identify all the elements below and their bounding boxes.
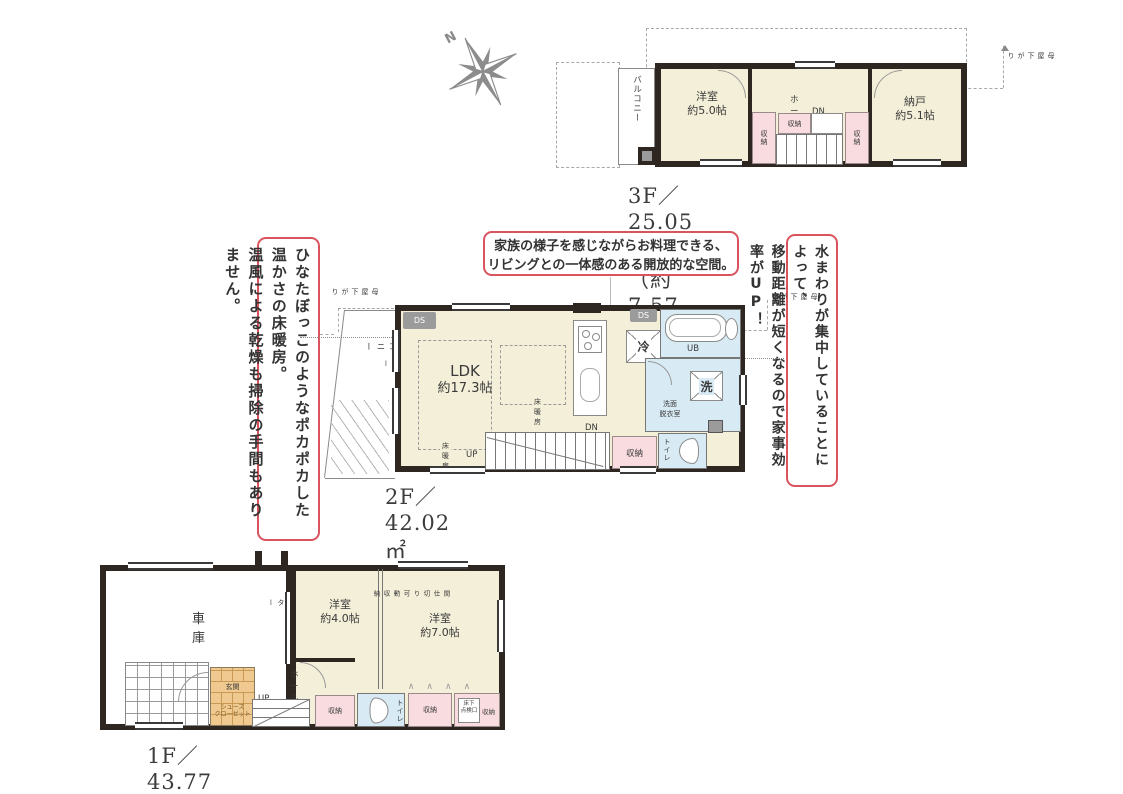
callout-kitchen-line1: 家族の様子を感じながらお料理できる、: [494, 235, 728, 254]
f2-burner-3: [584, 342, 592, 350]
f2-moya-west-dash-h: [338, 308, 394, 309]
f1-genkan: 玄関 シューズ クローゼット: [210, 667, 255, 726]
f1-window-north: [398, 561, 468, 569]
f1-underfloor-line2: 点検口: [459, 708, 479, 715]
f2-ldk-size: 約17.3帖: [420, 381, 510, 397]
f2-ub-room: UB: [660, 309, 741, 358]
f2-section-line-west: [300, 337, 396, 338]
f2-balcony-bottom-edge: [325, 478, 395, 479]
f2-shaft-box: [708, 420, 723, 433]
f3-moya-dash-line: [963, 88, 1003, 89]
f1-room-large-label: 洋室 約7.0帖: [400, 612, 480, 640]
f2-ds-box-east: DS: [630, 309, 657, 322]
f2-burner-1: [582, 330, 590, 338]
f2-toilet-room: トイレ: [658, 433, 707, 469]
f3-closet-hall-label: 収納: [788, 119, 802, 129]
callout-kitchen-leader: [610, 277, 611, 305]
f2-ds-box-west: DS: [403, 312, 436, 329]
f1-partition-label: 間仕切り可動収納: [371, 590, 451, 597]
f1-room-small-size: 約4.0帖: [300, 612, 380, 626]
f1-wall-stub-1: [255, 551, 262, 569]
callout-floorheat-leader: [320, 334, 334, 335]
f3-window-south-1: [700, 159, 742, 167]
f2-closet-label: 収納: [626, 447, 643, 459]
f1-toilet-icon: [370, 698, 389, 724]
f1-wall-stub-2: [281, 551, 288, 569]
f1-partition-line-1: [378, 569, 379, 689]
f3-stairs: [776, 134, 843, 165]
f3-room-east-size: 約5.1帖: [880, 109, 950, 123]
f2-range-hood: [573, 303, 601, 313]
f2-bath-basin: [725, 318, 738, 340]
f2-moya-east-dash-v: [767, 300, 768, 330]
f2-window-north-1: [452, 303, 510, 311]
f3-closet-east-label: 収納: [852, 130, 862, 146]
callout-floorheat: ひなたぼっこのようなポカポカした温かさの床暖房。 温風による乾燥も掃除の手間もあ…: [257, 237, 320, 541]
f3-balcony-label: バルコニー: [631, 75, 643, 123]
f2-window-south-1: [430, 466, 485, 474]
f2-washroom-door-arc: [648, 361, 672, 385]
f2-up-label: UP: [466, 450, 477, 460]
f3-stair-landing: [811, 113, 843, 134]
f1-closet-1: 収納: [315, 695, 355, 727]
f2-moya-west-label: 母屋下がり: [330, 288, 380, 296]
f1-room-large-name: 洋室: [400, 612, 480, 626]
f1-room-small-name: 洋室: [300, 598, 380, 612]
floorplan-page: N 母屋下がり: [0, 0, 1123, 794]
f2-washroom-label: 洗面 脱衣室: [654, 399, 686, 419]
f1-genkan-label: 玄関: [211, 682, 254, 692]
f1-shoes-label: シューズ クローゼット: [211, 704, 254, 718]
f3-moya-arrow: [1003, 46, 1004, 88]
f1-closet-door-marks: ∧∧∧∧: [392, 682, 498, 692]
f2-ds-east-label: DS: [638, 311, 649, 320]
f3-window-north: [795, 61, 835, 69]
f1-room-small-label: 洋室 約4.0帖: [300, 598, 380, 626]
f3-closet-west: 収納: [752, 112, 776, 164]
f2-bathtub-inner: [669, 318, 721, 337]
callout-water-line2: 移動距離が短くなるので家事効率がUP！: [744, 244, 787, 477]
f2-stairs: [485, 432, 610, 470]
f2-washer-label: 洗: [699, 378, 713, 395]
f1-closet-2-label: 収納: [423, 705, 437, 715]
f1-closet-3: 床下 点検口 収納: [454, 693, 500, 727]
f2-window-west-2: [392, 388, 400, 434]
f2-burner-2: [592, 333, 600, 341]
f2-toilet-icon: [679, 438, 699, 464]
f2-balcony-top-edge: [345, 310, 395, 311]
f1-shoes-line2: クローゼット: [211, 711, 254, 718]
f2-fridge-label: 冷: [636, 338, 650, 355]
f2-dn-label: DN: [585, 423, 598, 433]
f2-window-south-2: [620, 466, 656, 474]
compass: N: [419, 7, 545, 138]
f1-garage-label: 車庫: [192, 608, 205, 646]
callout-kitchen-line2: リビングとの一体感のある開放的な空間。: [488, 254, 735, 273]
f1-toilet-room: トイレ: [357, 693, 405, 727]
f2-washroom: 洗 洗面 脱衣室: [645, 358, 741, 432]
f1-partition-line-2: [382, 569, 383, 689]
f1-underfloor-hatch: 床下 点検口: [458, 698, 480, 723]
f2-closet: 収納: [612, 436, 657, 469]
f2-bathtub: [665, 314, 727, 342]
f1-toilet-label: トイレ: [395, 699, 405, 723]
f2-ds-west-label: DS: [414, 316, 425, 325]
f2-ldk-label: LDK 約17.3帖: [420, 362, 510, 397]
f3-closet-hall: 収納: [778, 113, 811, 134]
f2-moya-east-label: 母屋下がり: [769, 293, 819, 301]
f3-room-west-size: 約5.0帖: [672, 104, 742, 118]
f3-balcony-outline: [556, 62, 620, 168]
f2-floorheat-label-2: 床暖房: [532, 397, 543, 427]
f2-stove: [578, 326, 602, 353]
f1-closet-3-label: 収納: [482, 706, 495, 716]
f1-garage-window-north: [128, 562, 213, 570]
f2-washer: 洗: [690, 371, 723, 401]
f2-balcony-hatch: [331, 400, 389, 474]
f2-ldk-name: LDK: [420, 362, 510, 381]
f2-kitchen-sink: [580, 368, 600, 402]
f2-ub-label: UB: [687, 344, 699, 354]
f1-closet-1-label: 収納: [328, 706, 342, 716]
f2-window-west-1: [392, 330, 400, 372]
f2-window-east: [739, 375, 747, 405]
f1-closet-2: 収納: [408, 693, 452, 727]
f2-moya-west-dash-v: [338, 308, 339, 332]
f1-window-south: [135, 722, 183, 730]
callout-kitchen: 家族の様子を感じながらお料理できる、 リビングとの一体感のある開放的な空間。: [483, 231, 739, 276]
f3-moya-label: 母屋下がり: [1006, 52, 1056, 60]
callout-floorheat-line1: ひなたぼっこのようなポカポカした温かさの床暖房。: [267, 247, 314, 531]
f3-shaft-inner: [642, 151, 652, 161]
f1-room-large-size: 約7.0帖: [400, 626, 480, 640]
f3-window-south-2: [893, 159, 941, 167]
f2-toilet-label: トイレ: [662, 438, 672, 462]
f2-washroom-line2: 脱衣室: [654, 409, 686, 419]
f3-shaft-box: [638, 147, 656, 165]
callout-floorheat-line2: 温風による乾燥も掃除の手間もありません。: [220, 247, 267, 531]
f1-caption: 1F／43.77㎡（約13.24坪）: [147, 740, 212, 794]
callout-water-line1: 水まわりが集中していることによって、: [788, 244, 831, 477]
f3-room-east-label: 納戸 約5.1帖: [880, 95, 950, 123]
f2-washroom-line1: 洗面: [654, 399, 686, 409]
f3-closet-east: 収納: [845, 112, 869, 164]
f3-closet-west-label: 収納: [759, 130, 769, 146]
f1-window-east: [497, 600, 505, 652]
callout-water: 水まわりが集中していることによって、 移動距離が短くなるので家事効率がUP！: [786, 234, 838, 487]
